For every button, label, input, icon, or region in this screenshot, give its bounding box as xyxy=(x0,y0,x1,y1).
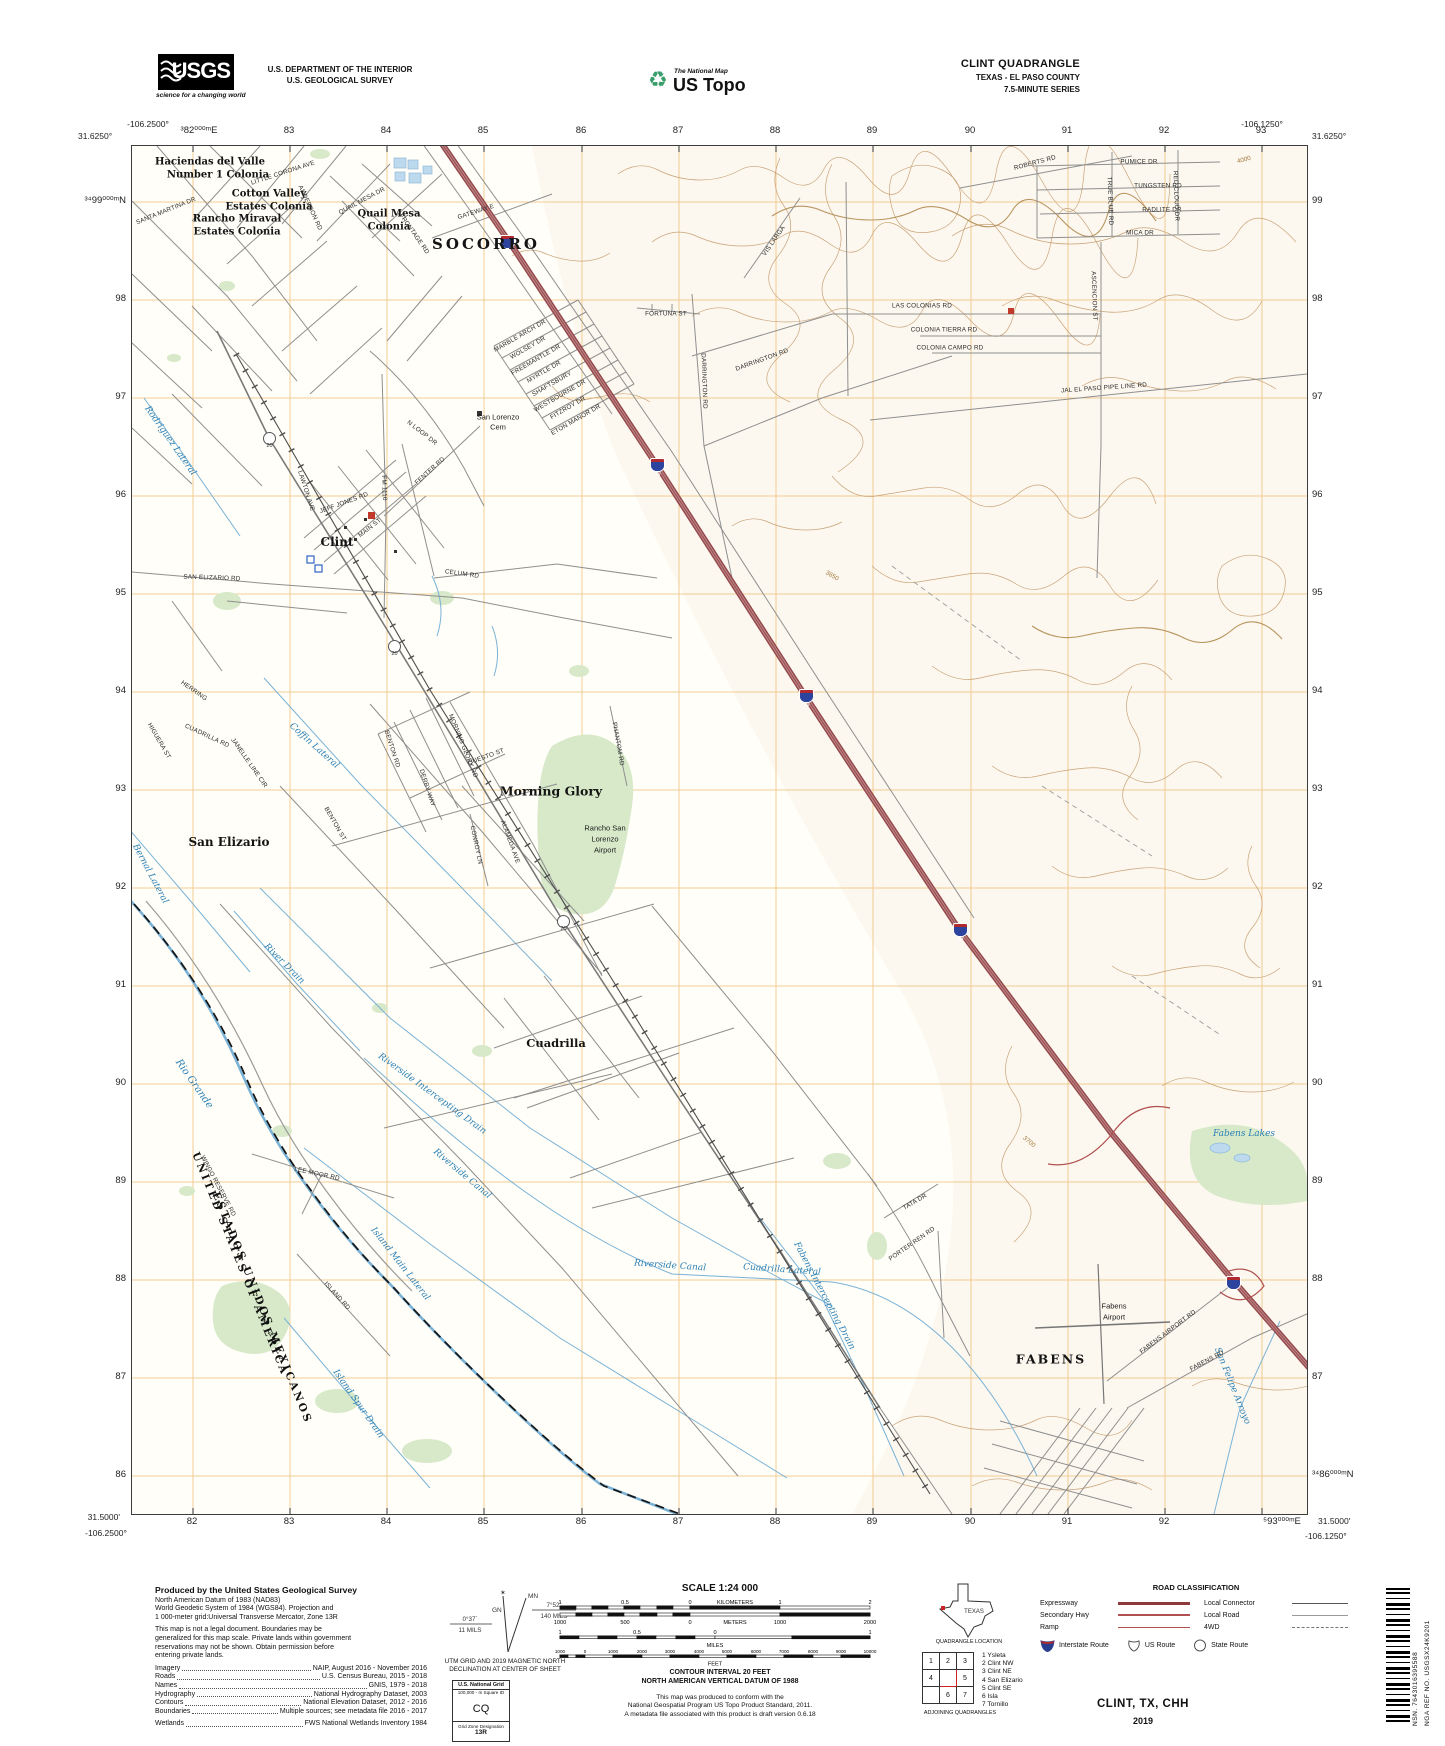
utm-left-13: 86 xyxy=(62,1469,126,1480)
colonia-label: Estates Colonia xyxy=(193,227,280,238)
barcode-nsn: NSN. 7643016395588 xyxy=(1412,1586,1419,1726)
corner-top-left-lon: -106.2500° xyxy=(127,119,169,129)
utm-left-3: 96 xyxy=(62,489,126,500)
usng-subtitle: 100,000 - m Square ID xyxy=(453,1690,509,1695)
utm-top-3: 85 xyxy=(478,125,489,136)
svg-text:1000: 1000 xyxy=(555,1649,566,1654)
utm-top-1: 83 xyxy=(284,125,295,136)
texas-outline: TEXAS xyxy=(938,1583,1000,1639)
map-canvas: 10 10 10 10 10 20 20 20 SOCORRO Clint Sa… xyxy=(131,145,1308,1515)
utm-right-9: 90 xyxy=(1312,1077,1323,1088)
road-label: FORTUNA ST xyxy=(645,311,687,318)
state-route-icon xyxy=(1193,1639,1207,1652)
colonia-label: Cotton Valley xyxy=(232,189,306,200)
colonia-label: Quail Mesa xyxy=(357,209,420,220)
svg-text:1: 1 xyxy=(868,1630,871,1636)
legal-line: This map is not a legal document. Bounda… xyxy=(155,1626,427,1635)
state-route-20-shield: 20 xyxy=(388,640,401,653)
utm-top-6: 88 xyxy=(770,125,781,136)
svg-text:4000: 4000 xyxy=(694,1649,705,1654)
svg-text:0.5: 0.5 xyxy=(621,1600,629,1606)
contour-interval-note: CONTOUR INTERVAL 20 FEET NORTH AMERICAN … xyxy=(520,1668,920,1686)
utm-right-5: 94 xyxy=(1312,685,1323,696)
corner-bottom-right-lon: -106.1250° xyxy=(1305,1531,1347,1541)
utm-bottom-10: 92 xyxy=(1159,1516,1170,1527)
corner-bottom-left-lon: -106.2500° xyxy=(85,1528,127,1538)
svg-text:9000: 9000 xyxy=(836,1649,847,1654)
credit-row: RoadsU.S. Census Bureau, 2015 - 2018 xyxy=(155,1673,427,1682)
site-label: San Lorenzo xyxy=(477,413,520,422)
utm-right-0: 99 xyxy=(1312,195,1323,206)
svg-text:MN: MN xyxy=(528,1593,538,1600)
svg-text:1: 1 xyxy=(558,1600,561,1606)
usng-title: U.S. National Grid xyxy=(453,1681,509,1690)
corner-bottom-left-lat: 31.5000' xyxy=(62,1512,120,1522)
utm-right-12: 87 xyxy=(1312,1371,1323,1382)
quadrangle-location: TEXAS QUADRANGLE LOCATION xyxy=(938,1583,1000,1644)
utm-bottom-2: 84 xyxy=(381,1516,392,1527)
interstate-10-shield: 10 xyxy=(650,458,665,472)
barcode xyxy=(1386,1588,1410,1722)
svg-text:6000: 6000 xyxy=(751,1649,762,1654)
credit-row: NamesGNIS, 1979 - 2018 xyxy=(155,1682,427,1691)
barcode-ref: NGA REF NO. USGSX24K9201 xyxy=(1424,1586,1431,1726)
utm-left-5: 94 xyxy=(62,685,126,696)
produced-by: Produced by the United States Geological… xyxy=(155,1586,427,1595)
dept-line1: U.S. DEPARTMENT OF THE INTERIOR xyxy=(250,64,430,75)
usgs-logo: USGS xyxy=(158,54,234,90)
department-heading: U.S. DEPARTMENT OF THE INTERIOR U.S. GEO… xyxy=(250,64,430,86)
utm-left-6: 93 xyxy=(62,783,126,794)
utm-bottom-3: 85 xyxy=(478,1516,489,1527)
utm-right-7: 92 xyxy=(1312,881,1323,892)
svg-text:11 MILS: 11 MILS xyxy=(459,1627,482,1634)
svg-text:KILOMETERS: KILOMETERS xyxy=(717,1600,753,1606)
credit-row: ImageryNAIP, August 2016 - November 2016 xyxy=(155,1665,427,1674)
utm-left-7: 92 xyxy=(62,881,126,892)
utm-top-4: 86 xyxy=(576,125,587,136)
water-label: Fabens Lakes xyxy=(1213,1129,1275,1139)
sheet-year: 2019 xyxy=(1028,1716,1258,1726)
expressway-swatch xyxy=(1118,1602,1190,1605)
usng-zone-label: Grid Zone Designation xyxy=(453,1721,509,1729)
scale-bars: 1 0.5 0 KILOMETERS 1 2 1000 500 0 METERS… xyxy=(540,1596,900,1666)
road-label: FM 1110 xyxy=(380,475,388,501)
adjoining-caption: ADJOINING QUADRANGLES xyxy=(900,1710,1020,1716)
quad-location-dot xyxy=(941,1606,945,1610)
utm-bottom-6: 88 xyxy=(770,1516,781,1527)
corner-top-right-lat: 31.6250° xyxy=(1312,131,1346,141)
national-map-label: The National Map xyxy=(674,68,728,75)
utm-bottom-1: 83 xyxy=(284,1516,295,1527)
state-route-20-shield: 20 xyxy=(263,432,276,445)
interstate-10-shield: 10 xyxy=(799,689,814,703)
usng-box: U.S. National Grid 100,000 - m Square ID… xyxy=(452,1680,510,1742)
site-label: Fabens xyxy=(1101,1302,1126,1311)
utm-left-11: 88 xyxy=(62,1273,126,1284)
quadrangle-title-block: CLINT QUADRANGLE TEXAS - EL PASO COUNTY … xyxy=(880,58,1080,94)
local-road-swatch xyxy=(1292,1615,1348,1616)
utm-right-13: ³⁴86⁰⁰⁰ᵐN xyxy=(1312,1469,1354,1480)
quad-title: CLINT QUADRANGLE xyxy=(880,58,1080,70)
utm-right-1: 98 xyxy=(1312,293,1323,304)
utm-right-8: 91 xyxy=(1312,979,1323,990)
utm-right-11: 88 xyxy=(1312,1273,1323,1284)
svg-text:METERS: METERS xyxy=(723,1620,747,1626)
fourwd-swatch xyxy=(1292,1627,1348,1628)
utm-top-7: 89 xyxy=(867,125,878,136)
svg-text:8000: 8000 xyxy=(808,1649,819,1654)
utm-left-9: 90 xyxy=(62,1077,126,1088)
corner-bottom-right-lat: 31.5000' xyxy=(1318,1516,1350,1526)
town-label-clint: Clint xyxy=(321,535,354,549)
us-route-shield-icon xyxy=(1127,1639,1141,1652)
utm-left-10: 89 xyxy=(62,1175,126,1186)
legal-line: entering private lands. xyxy=(155,1652,427,1661)
site-label: Rancho San xyxy=(584,824,625,833)
road-label: LAS COLONIAS RD xyxy=(892,303,952,310)
utm-left-2: 97 xyxy=(62,391,126,402)
datum-line: 1 000-meter grid:Universal Transverse Me… xyxy=(155,1614,427,1623)
utm-bottom-9: 91 xyxy=(1062,1516,1073,1527)
utm-top-5: 87 xyxy=(673,125,684,136)
state-route-20-shield: 20 xyxy=(557,915,570,928)
ramp-swatch xyxy=(1118,1627,1190,1628)
utm-top-8: 90 xyxy=(965,125,976,136)
svg-text:GN: GN xyxy=(492,1607,502,1614)
usgs-tagline: science for a changing world xyxy=(156,92,246,99)
utm-left-8: 91 xyxy=(62,979,126,990)
svg-text:0: 0 xyxy=(713,1630,716,1636)
usng-square-id: CQ xyxy=(453,1695,509,1721)
svg-text:3000: 3000 xyxy=(665,1649,676,1654)
road-classification-legend: ROAD CLASSIFICATION Expressway Local Con… xyxy=(1040,1583,1352,1652)
utm-right-4: 95 xyxy=(1312,587,1323,598)
utm-bottom-8: 90 xyxy=(965,1516,976,1527)
road-label: COLONIA TIERRA RD xyxy=(911,327,978,334)
colonia-label: Haciendas del Valle xyxy=(155,157,265,168)
usgs-logo-text: USGS xyxy=(172,58,230,84)
utm-bottom-7: 89 xyxy=(867,1516,878,1527)
credit-row: HydrographyNational Hydrography Dataset,… xyxy=(155,1691,427,1700)
legal-line: generalized for this map scale. Private … xyxy=(155,1635,427,1644)
svg-text:1: 1 xyxy=(778,1600,781,1606)
utm-left-12: 87 xyxy=(62,1371,126,1382)
svg-text:0.5: 0.5 xyxy=(633,1630,641,1636)
town-label-fabens: FABENS xyxy=(1016,1352,1086,1367)
colonia-label: Estates Colonia xyxy=(225,202,312,213)
svg-text:2000: 2000 xyxy=(864,1620,876,1626)
quad-location-caption: QUADRANGLE LOCATION xyxy=(924,1639,1014,1645)
site-label: Airport xyxy=(594,846,616,855)
utm-top-11: 93 xyxy=(1256,125,1267,136)
utm-right-3: 96 xyxy=(1312,489,1323,500)
road-label: PUMICE DR xyxy=(1120,159,1157,166)
svg-text:FEET: FEET xyxy=(708,1662,723,1667)
svg-text:✶: ✶ xyxy=(500,1589,506,1597)
map-graphics xyxy=(132,146,1307,1514)
secondary-hwy-swatch xyxy=(1118,1614,1190,1616)
ustopo-label: US Topo xyxy=(673,75,746,96)
svg-text:0: 0 xyxy=(584,1649,587,1654)
utm-left-0: ³⁴99⁰⁰⁰ᵐN xyxy=(62,195,126,206)
colonia-label: Rancho Miraval xyxy=(193,214,282,225)
town-label-morning-glory: Morning Glory xyxy=(500,784,602,799)
utm-left-1: 98 xyxy=(62,293,126,304)
corner-top-left-lat: 31.6250° xyxy=(78,131,112,141)
credit-row: ContoursNational Elevation Dataset, 2012… xyxy=(155,1699,427,1708)
utm-top-9: 91 xyxy=(1062,125,1073,136)
usgs-topo-sheet: USGS science for a changing world U.S. D… xyxy=(0,0,1445,1746)
scale-title: SCALE 1:24 000 xyxy=(540,1583,900,1594)
utm-top-10: 92 xyxy=(1159,125,1170,136)
utm-right-10: 89 xyxy=(1312,1175,1323,1186)
credit-row: WetlandsFWS National Wetlands Inventory … xyxy=(155,1720,427,1729)
svg-text:TEXAS: TEXAS xyxy=(964,1609,984,1615)
national-map-icon: ♻ xyxy=(648,70,668,90)
town-label-san-elizario: San Elizario xyxy=(188,835,269,849)
svg-text:2000: 2000 xyxy=(637,1649,648,1654)
svg-text:0: 0 xyxy=(688,1600,691,1606)
utm-bottom-0: 82 xyxy=(187,1516,198,1527)
site-label: Cem xyxy=(490,423,506,432)
svg-text:500: 500 xyxy=(620,1620,629,1626)
svg-text:0: 0 xyxy=(688,1620,691,1626)
utm-right-6: 93 xyxy=(1312,783,1323,794)
production-credits: Produced by the United States Geological… xyxy=(155,1586,427,1729)
svg-text:1: 1 xyxy=(558,1630,561,1636)
local-connector-swatch xyxy=(1292,1603,1348,1604)
svg-text:7000: 7000 xyxy=(779,1649,790,1654)
usng-zone: 13R xyxy=(453,1729,509,1736)
road-class-title: ROAD CLASSIFICATION xyxy=(1040,1583,1352,1592)
site-label: Lorenzo xyxy=(591,835,618,844)
adjoining-quadrangle-names: 1 Ysleta 2 Clint NW 3 Clint NE 4 San Eli… xyxy=(982,1652,1023,1709)
interstate-10-shield: 10 xyxy=(953,923,968,937)
utm-bottom-11: ⁵93⁰⁰⁰ᵐE xyxy=(1263,1516,1301,1527)
town-label-socorro: SOCORRO xyxy=(432,235,540,253)
sheet-title: CLINT, TX, CHH xyxy=(1028,1698,1258,1710)
svg-text:1000: 1000 xyxy=(554,1620,566,1626)
utm-bottom-5: 87 xyxy=(673,1516,684,1527)
legal-line: reservations may not be shown. Obtain pe… xyxy=(155,1644,427,1653)
svg-text:1000: 1000 xyxy=(774,1620,786,1626)
interstate-shield-icon xyxy=(1040,1639,1055,1652)
utm-bottom-4: 86 xyxy=(576,1516,587,1527)
utm-left-4: 95 xyxy=(62,587,126,598)
utm-right-2: 97 xyxy=(1312,391,1323,402)
svg-text:1000: 1000 xyxy=(608,1649,619,1654)
credit-row: BoundariesMultiple sources; see metadata… xyxy=(155,1708,427,1717)
svg-text:10000: 10000 xyxy=(864,1649,877,1654)
svg-text:0°37´: 0°37´ xyxy=(462,1615,477,1623)
datum-line: North American Datum of 1983 (NAD83) xyxy=(155,1597,427,1606)
interstate-10-shield: 10 xyxy=(1226,1276,1241,1290)
svg-text:2: 2 xyxy=(868,1600,871,1606)
datum-line: World Geodetic System of 1984 (WGS84). P… xyxy=(155,1605,427,1614)
road-label: MICA DR xyxy=(1126,230,1154,237)
quad-subtitle1: TEXAS - EL PASO COUNTY xyxy=(880,73,1080,82)
dept-line2: U.S. GEOLOGICAL SURVEY xyxy=(250,75,430,86)
town-label-cuadrilla: Cuadrilla xyxy=(526,1036,586,1050)
adjoining-quadrangles-grid: 123 45 67 xyxy=(922,1652,974,1704)
svg-text:5000: 5000 xyxy=(722,1649,733,1654)
conformance-note: This map was produced to conform with th… xyxy=(520,1694,920,1719)
utm-top-2: 84 xyxy=(381,125,392,136)
quad-subtitle2: 7.5-MINUTE SERIES xyxy=(880,85,1080,94)
utm-top-0: ³82⁰⁰⁰ᵐE xyxy=(181,125,218,136)
site-label: Airport xyxy=(1103,1313,1125,1322)
road-label: COLONIA CAMPO RD xyxy=(917,345,984,352)
